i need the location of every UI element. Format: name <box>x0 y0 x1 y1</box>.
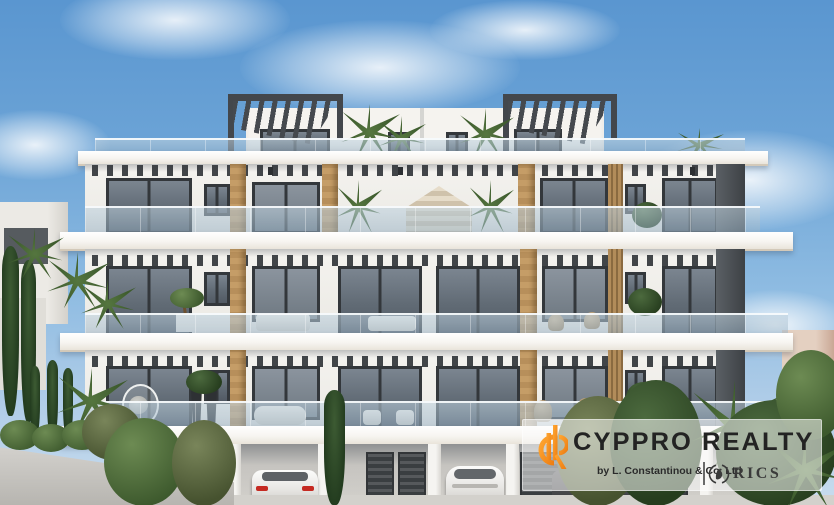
car-taillight <box>256 486 268 491</box>
car-rear-window <box>454 469 496 479</box>
floor2-window-small <box>204 272 230 306</box>
rics-emblem-icon <box>708 462 730 486</box>
cypress-tree <box>324 390 345 505</box>
brand-name: CYPPRO REALTY <box>573 428 814 457</box>
cypress-tree <box>2 246 19 416</box>
ceiling-spot <box>398 167 403 175</box>
floor3-ceiling-slats <box>92 165 738 176</box>
balcony-plant <box>628 288 662 316</box>
pergola-beam <box>503 94 617 101</box>
pergola-post <box>337 94 343 140</box>
watermark-banner: CYPPRO REALTY by L. Constantinou & Co. L… <box>522 419 822 491</box>
pergola-post <box>611 94 617 140</box>
rics-label: RICS <box>733 465 781 483</box>
floor2-ceiling-slats <box>92 255 738 266</box>
architectural-rendering: CYPPRO REALTY by L. Constantinou & Co. L… <box>0 0 834 505</box>
car-bumper <box>452 484 498 488</box>
divider <box>703 462 705 485</box>
ceiling-spot <box>268 167 273 175</box>
ceiling-spot <box>690 167 695 175</box>
tree <box>172 420 236 505</box>
cloud <box>430 0 620 60</box>
planter-plant <box>186 370 222 394</box>
car-windscreen <box>262 472 308 481</box>
car-taillight <box>302 486 314 491</box>
bonsai-tree <box>170 288 204 308</box>
pergola-beam <box>228 94 343 101</box>
cyppro-logo-icon <box>530 424 568 470</box>
